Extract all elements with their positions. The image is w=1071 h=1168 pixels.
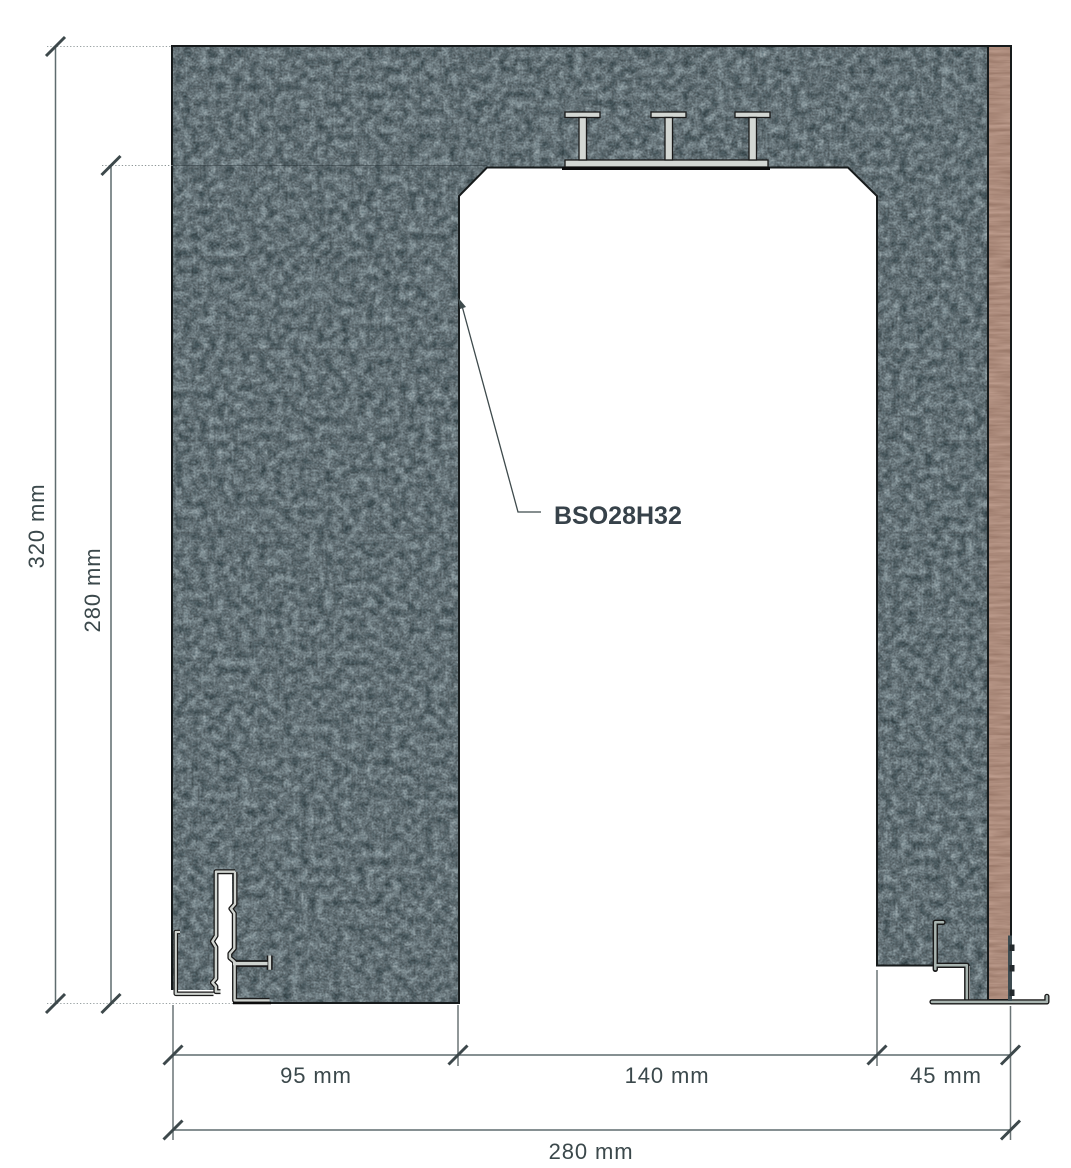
- svg-text:280 mm: 280 mm: [549, 1139, 634, 1164]
- svg-text:280 mm: 280 mm: [80, 548, 105, 633]
- svg-text:95 mm: 95 mm: [280, 1063, 352, 1088]
- svg-text:BSO28H32: BSO28H32: [554, 502, 682, 530]
- svg-text:45 mm: 45 mm: [910, 1063, 982, 1088]
- svg-text:320 mm: 320 mm: [24, 484, 49, 569]
- svg-text:140 mm: 140 mm: [625, 1063, 710, 1088]
